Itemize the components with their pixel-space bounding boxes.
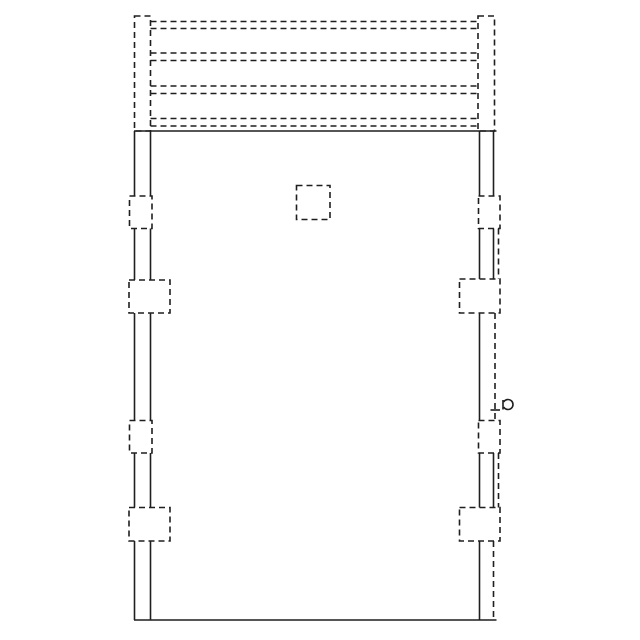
anchor-box-left-lower xyxy=(129,508,170,542)
viewer-square xyxy=(297,186,331,220)
transom-right-post xyxy=(478,16,495,131)
technical-drawing-page xyxy=(0,0,640,640)
hinge-box-left-bottom xyxy=(130,421,153,454)
hinge-box-right-top xyxy=(479,196,501,229)
anchor-box-right-lower xyxy=(460,508,501,542)
hinge-box-right-bottom xyxy=(479,421,501,454)
knob-icon xyxy=(504,400,513,410)
door-frame-elevation-drawing xyxy=(0,0,640,640)
anchor-box-right-upper xyxy=(460,279,501,313)
transom-left-post xyxy=(135,16,151,131)
hinge-box-left-top xyxy=(130,196,153,229)
anchor-box-left-upper xyxy=(129,280,170,313)
